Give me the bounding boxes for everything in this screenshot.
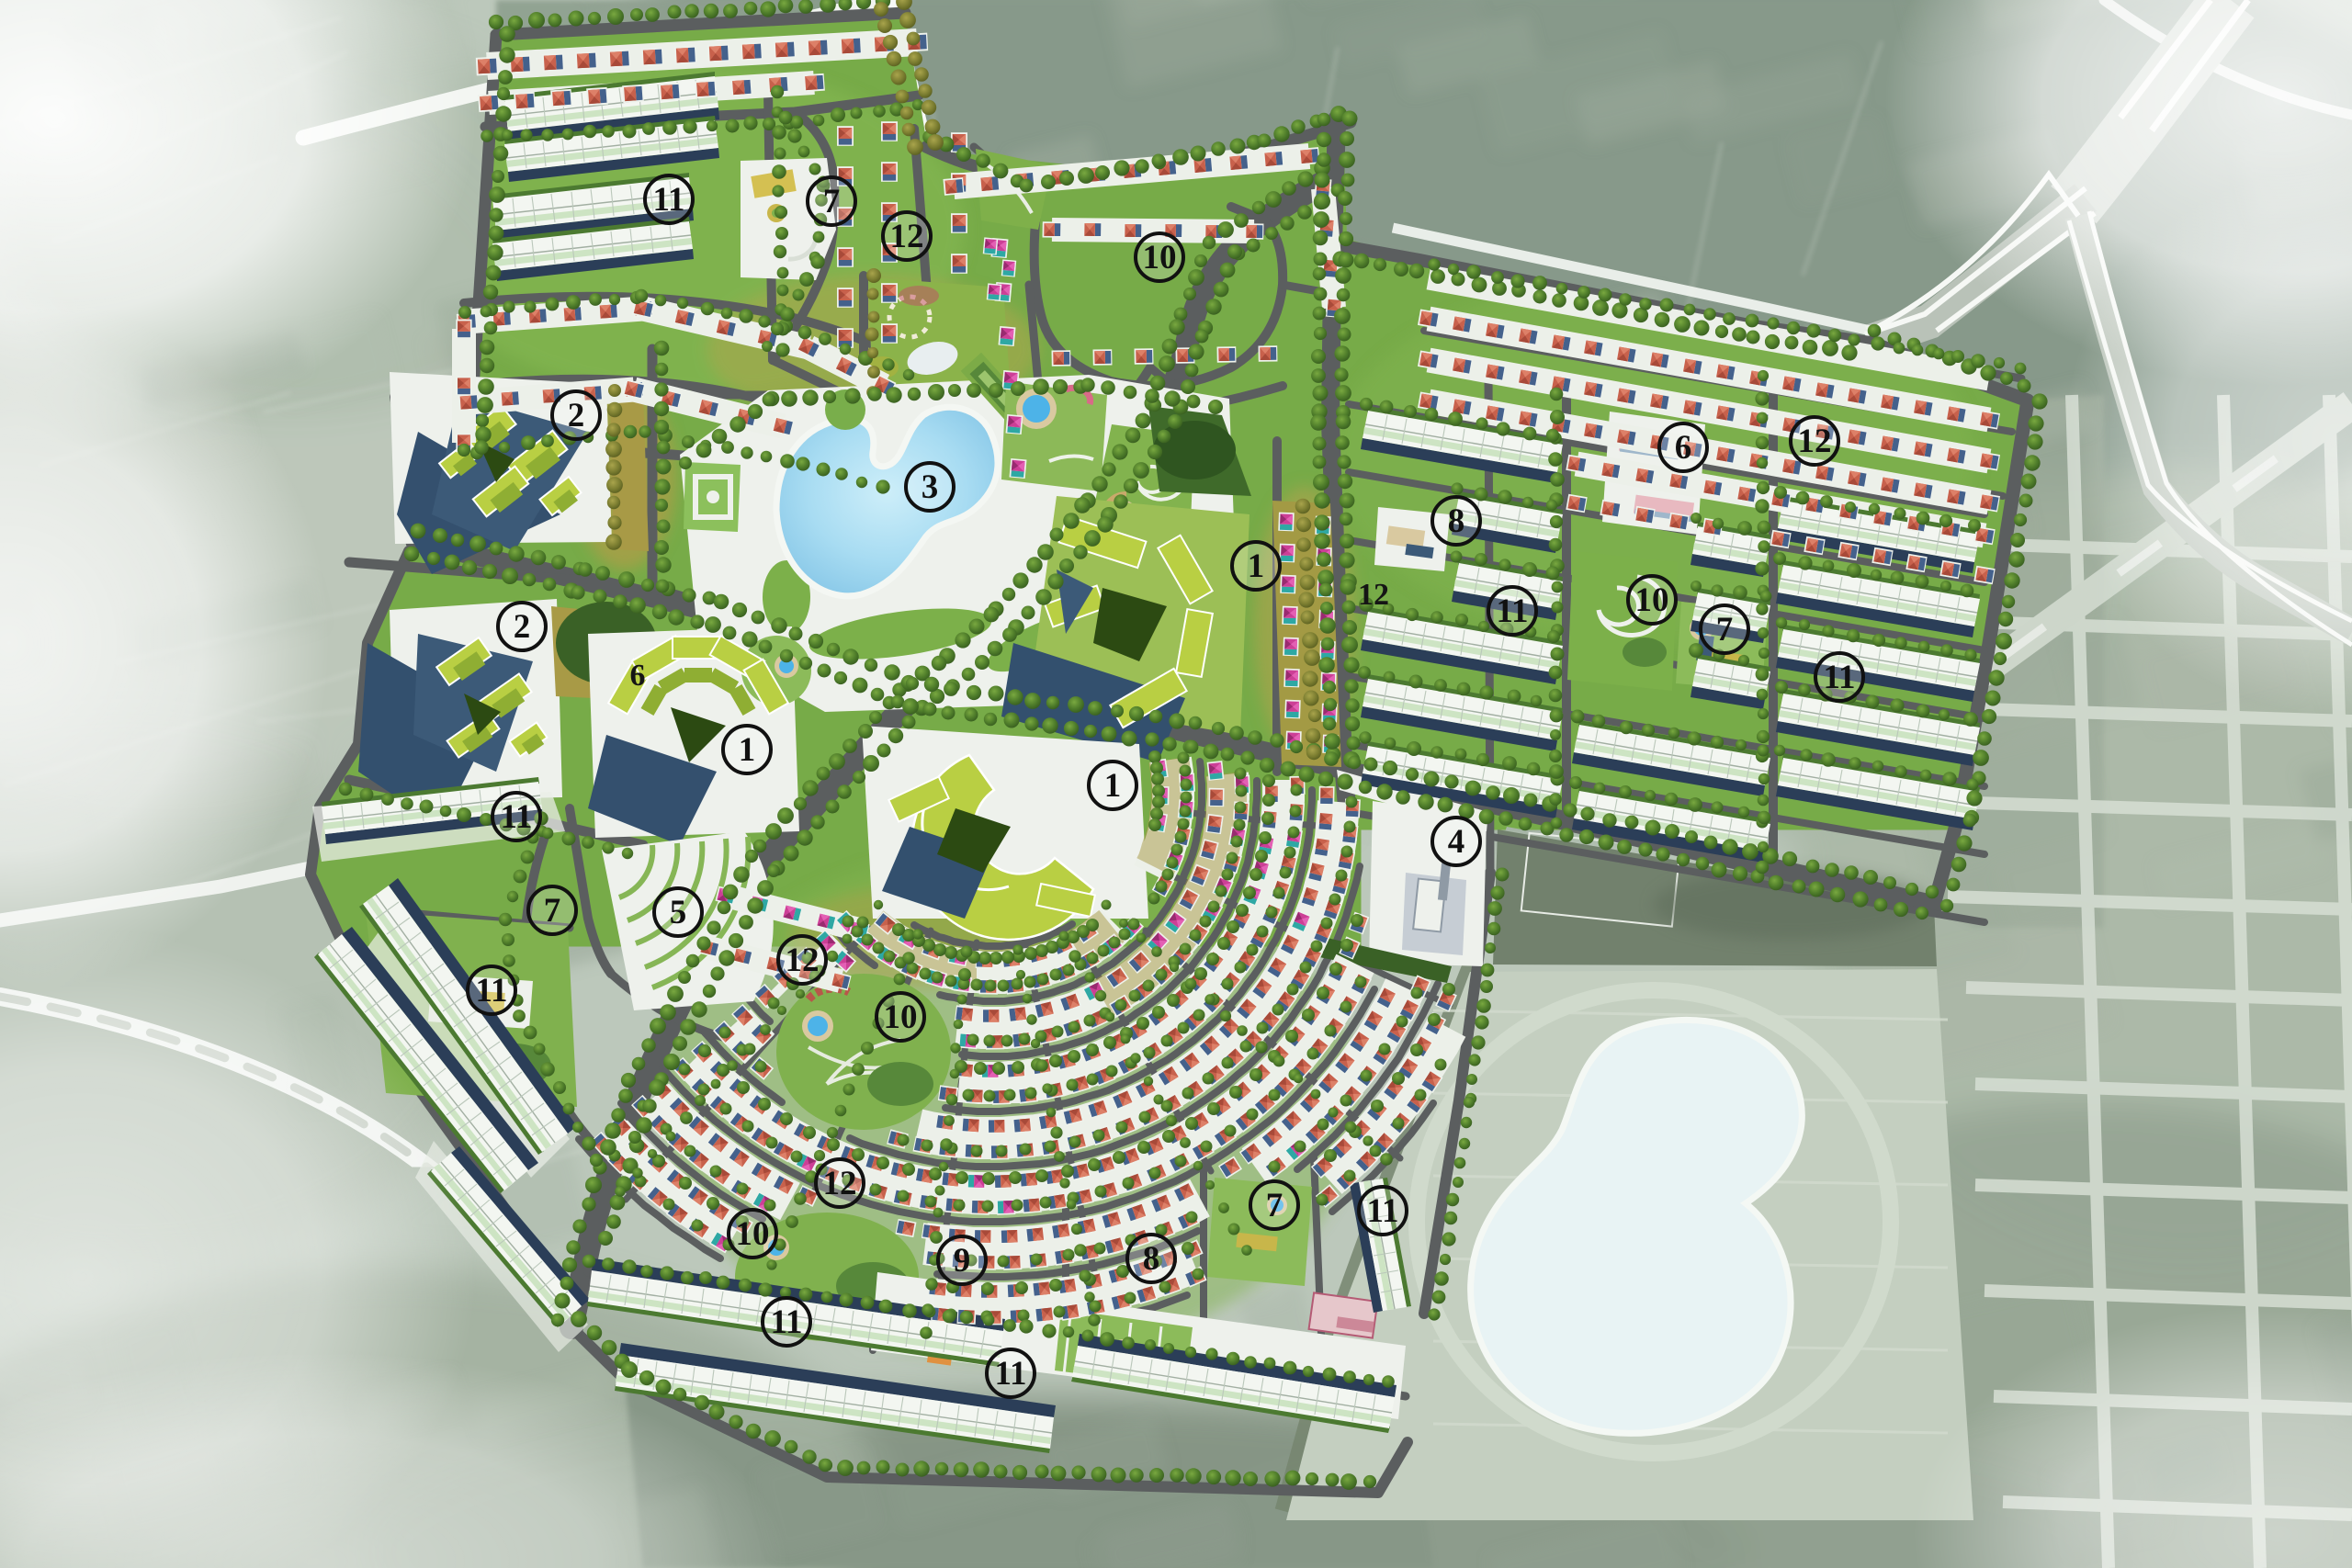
svg-text:10: 10 bbox=[884, 998, 918, 1036]
svg-text:12: 12 bbox=[1358, 578, 1389, 612]
svg-text:11: 11 bbox=[653, 181, 685, 219]
svg-text:4: 4 bbox=[1448, 823, 1465, 861]
svg-text:11: 11 bbox=[771, 1303, 803, 1341]
svg-text:10: 10 bbox=[736, 1215, 770, 1253]
svg-text:7: 7 bbox=[823, 183, 841, 220]
svg-text:11: 11 bbox=[1497, 592, 1529, 630]
svg-text:6: 6 bbox=[1675, 429, 1692, 467]
svg-text:11: 11 bbox=[1824, 659, 1856, 696]
svg-text:11: 11 bbox=[476, 972, 508, 1010]
svg-text:7: 7 bbox=[1266, 1187, 1283, 1224]
svg-text:12: 12 bbox=[823, 1165, 857, 1202]
svg-text:1: 1 bbox=[1104, 767, 1122, 805]
svg-text:8: 8 bbox=[1143, 1240, 1160, 1278]
svg-text:2: 2 bbox=[568, 397, 585, 434]
svg-text:8: 8 bbox=[1448, 502, 1465, 540]
svg-text:3: 3 bbox=[922, 468, 939, 506]
svg-text:12: 12 bbox=[1798, 423, 1832, 460]
svg-text:11: 11 bbox=[501, 798, 533, 836]
svg-text:11: 11 bbox=[995, 1355, 1027, 1393]
svg-text:10: 10 bbox=[1143, 239, 1177, 276]
svg-text:2: 2 bbox=[514, 608, 531, 646]
svg-text:5: 5 bbox=[670, 894, 687, 931]
svg-text:10: 10 bbox=[1635, 581, 1669, 619]
svg-text:6: 6 bbox=[630, 659, 646, 693]
svg-text:9: 9 bbox=[954, 1242, 971, 1280]
svg-text:1: 1 bbox=[1248, 547, 1265, 585]
svg-text:12: 12 bbox=[786, 942, 820, 979]
svg-text:7: 7 bbox=[544, 892, 561, 930]
svg-text:11: 11 bbox=[1367, 1192, 1399, 1230]
svg-text:12: 12 bbox=[890, 218, 924, 255]
svg-text:7: 7 bbox=[1716, 611, 1734, 649]
svg-text:1: 1 bbox=[739, 731, 756, 769]
